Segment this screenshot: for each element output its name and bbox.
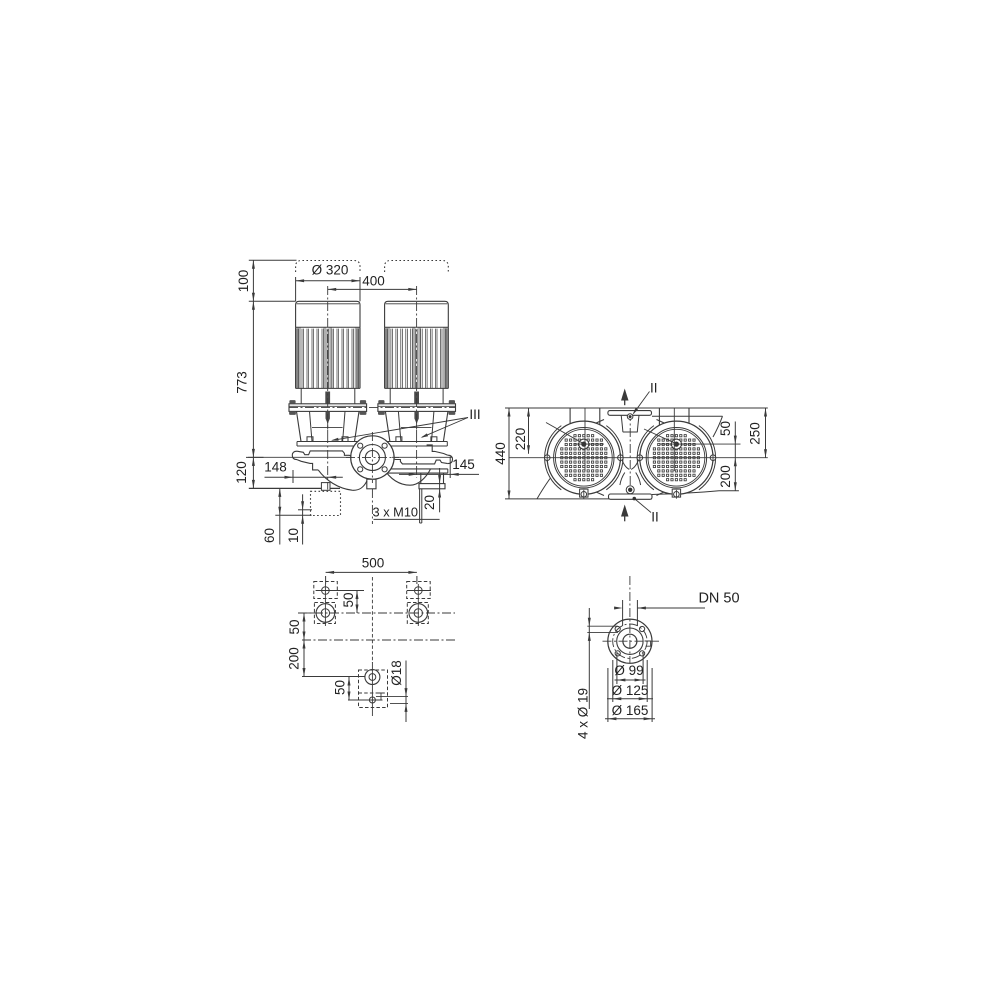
svg-text:Ø 165: Ø 165 — [612, 703, 649, 718]
svg-text:III: III — [469, 407, 480, 422]
svg-text:20: 20 — [422, 495, 437, 510]
svg-text:200: 200 — [287, 647, 302, 670]
svg-text:500: 500 — [362, 556, 385, 571]
svg-text:50: 50 — [341, 592, 356, 607]
svg-text:250: 250 — [747, 422, 762, 445]
svg-text:120: 120 — [234, 461, 249, 484]
svg-text:II: II — [651, 509, 659, 524]
svg-text:Ø 99: Ø 99 — [614, 663, 643, 678]
svg-text:Ø 320: Ø 320 — [312, 263, 349, 278]
svg-text:440: 440 — [493, 442, 508, 465]
svg-text:II: II — [650, 380, 658, 395]
svg-text:220: 220 — [513, 428, 528, 451]
svg-text:50: 50 — [718, 421, 733, 436]
svg-text:773: 773 — [234, 371, 249, 394]
svg-text:Ø18: Ø18 — [389, 660, 404, 686]
svg-text:3 x M10: 3 x M10 — [373, 504, 419, 519]
svg-text:4 x Ø 19: 4 x Ø 19 — [575, 688, 590, 739]
svg-text:DN 50: DN 50 — [698, 591, 739, 607]
svg-text:400: 400 — [362, 274, 385, 289]
svg-text:145: 145 — [452, 457, 475, 472]
svg-text:148: 148 — [264, 460, 287, 475]
svg-text:10: 10 — [286, 528, 301, 543]
svg-text:100: 100 — [236, 270, 251, 293]
svg-text:60: 60 — [262, 528, 277, 543]
svg-text:Ø 125: Ø 125 — [612, 683, 649, 698]
svg-text:50: 50 — [332, 680, 347, 695]
svg-text:50: 50 — [287, 619, 302, 634]
svg-text:200: 200 — [718, 465, 733, 488]
